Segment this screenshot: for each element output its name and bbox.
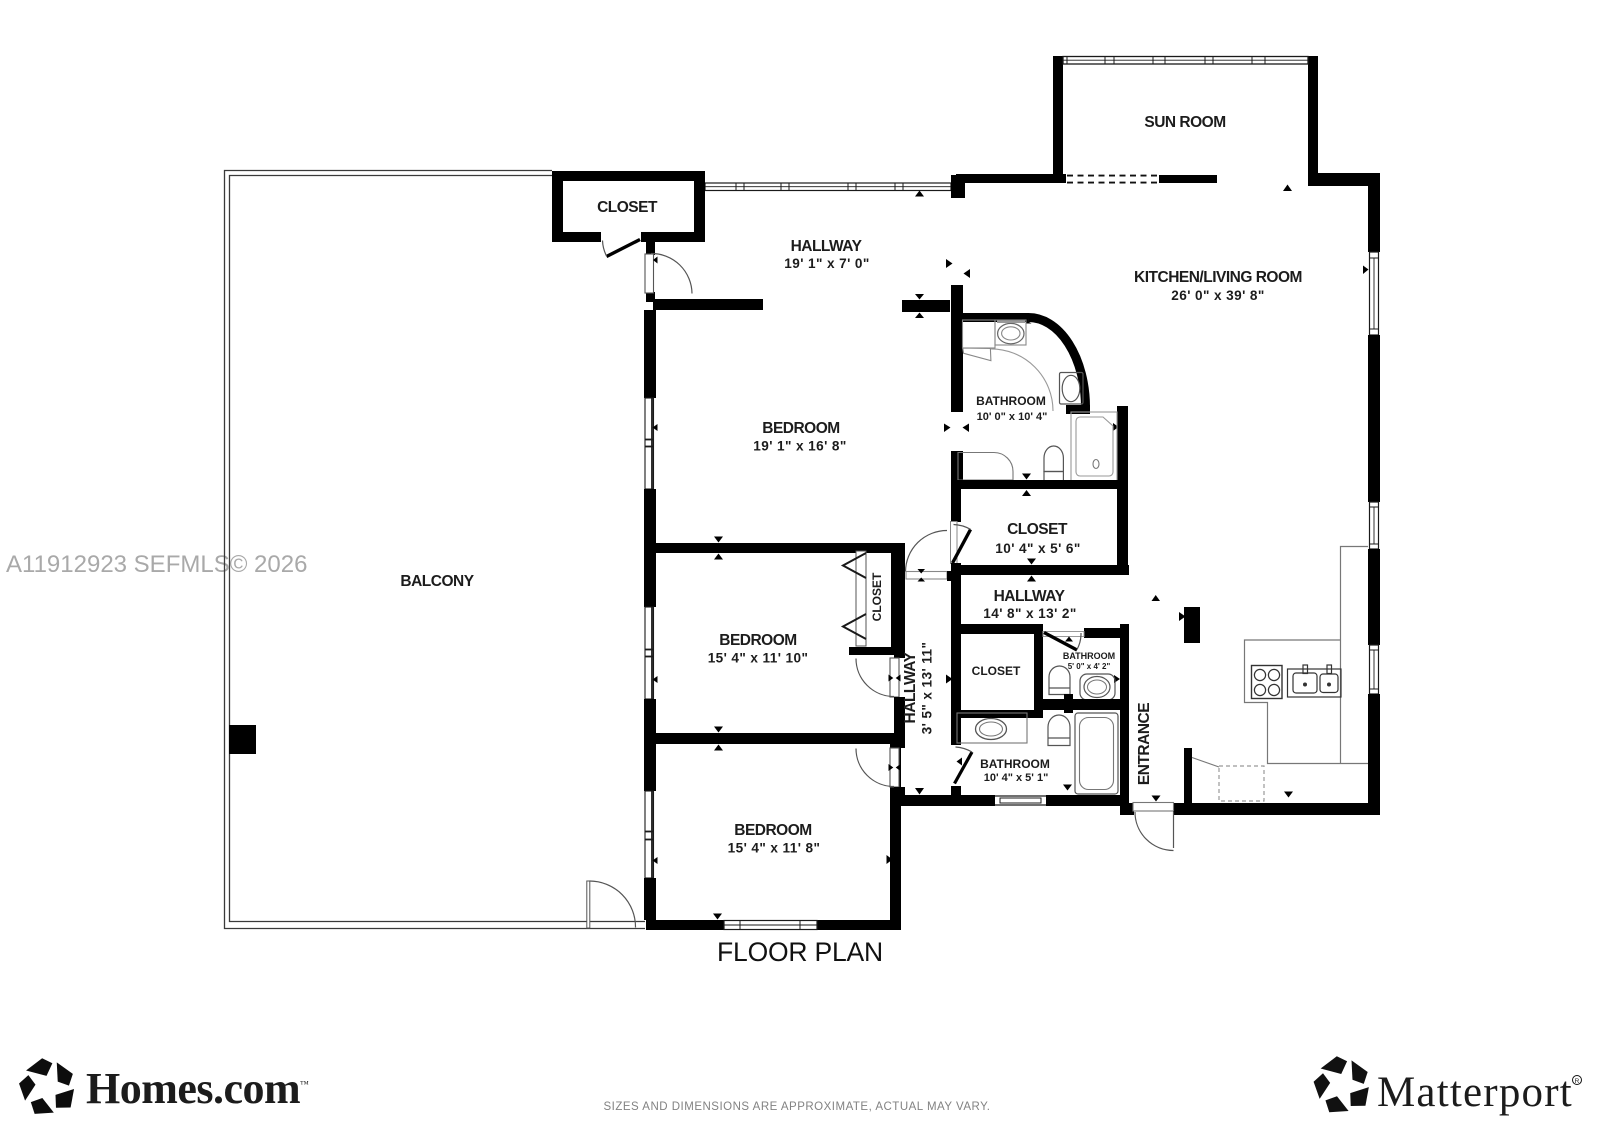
svg-text:HALLWAY: HALLWAY <box>902 651 919 723</box>
svg-text:19' 1" x 16' 8": 19' 1" x 16' 8" <box>753 439 846 454</box>
svg-text:CLOSET: CLOSET <box>870 572 884 621</box>
svg-text:Homes.com: Homes.com <box>86 1064 300 1113</box>
svg-text:SIZES AND DIMENSIONS ARE APPRO: SIZES AND DIMENSIONS ARE APPROXIMATE, AC… <box>603 1101 990 1113</box>
svg-text:10' 4" x 5' 6": 10' 4" x 5' 6" <box>995 541 1080 556</box>
svg-text:KITCHEN/LIVING ROOM: KITCHEN/LIVING ROOM <box>1134 269 1302 286</box>
svg-text:3' 5" x 13' 11": 3' 5" x 13' 11" <box>920 642 935 735</box>
svg-text:26' 0" x 39' 8": 26' 0" x 39' 8" <box>1171 288 1264 303</box>
svg-text:HALLWAY: HALLWAY <box>994 588 1066 605</box>
svg-text:FLOOR PLAN: FLOOR PLAN <box>717 937 883 967</box>
svg-text:™: ™ <box>300 1079 309 1089</box>
svg-text:5' 0" x 4' 2": 5' 0" x 4' 2" <box>1068 662 1111 671</box>
svg-text:ENTRANCE: ENTRANCE <box>1136 703 1153 785</box>
svg-text:BALCONY: BALCONY <box>400 573 474 590</box>
svg-text:BEDROOM: BEDROOM <box>762 420 839 437</box>
svg-text:BATHROOM: BATHROOM <box>1063 651 1115 661</box>
svg-text:CLOSET: CLOSET <box>972 664 1021 678</box>
svg-text:R: R <box>1575 1078 1580 1085</box>
svg-text:HALLWAY: HALLWAY <box>791 238 863 255</box>
svg-text:CLOSET: CLOSET <box>597 199 658 216</box>
svg-text:19' 1" x 7' 0": 19' 1" x 7' 0" <box>784 256 869 271</box>
svg-text:BEDROOM: BEDROOM <box>719 632 796 649</box>
svg-text:15' 4" x 11' 10": 15' 4" x 11' 10" <box>708 651 809 666</box>
svg-text:Matterport: Matterport <box>1377 1069 1573 1116</box>
svg-text:10' 0" x 10' 4": 10' 0" x 10' 4" <box>977 411 1048 423</box>
svg-text:BATHROOM: BATHROOM <box>980 757 1050 771</box>
svg-text:BATHROOM: BATHROOM <box>976 394 1046 408</box>
svg-text:CLOSET: CLOSET <box>1007 521 1068 538</box>
svg-text:BEDROOM: BEDROOM <box>734 822 811 839</box>
svg-text:15' 4" x 11' 8": 15' 4" x 11' 8" <box>728 841 821 856</box>
svg-text:SUN ROOM: SUN ROOM <box>1144 114 1225 131</box>
svg-text:10' 4" x 5' 1": 10' 4" x 5' 1" <box>984 772 1049 784</box>
svg-text:A11912923 SEFMLS© 2026: A11912923 SEFMLS© 2026 <box>6 551 307 578</box>
svg-text:14' 8" x 13' 2": 14' 8" x 13' 2" <box>983 606 1076 621</box>
